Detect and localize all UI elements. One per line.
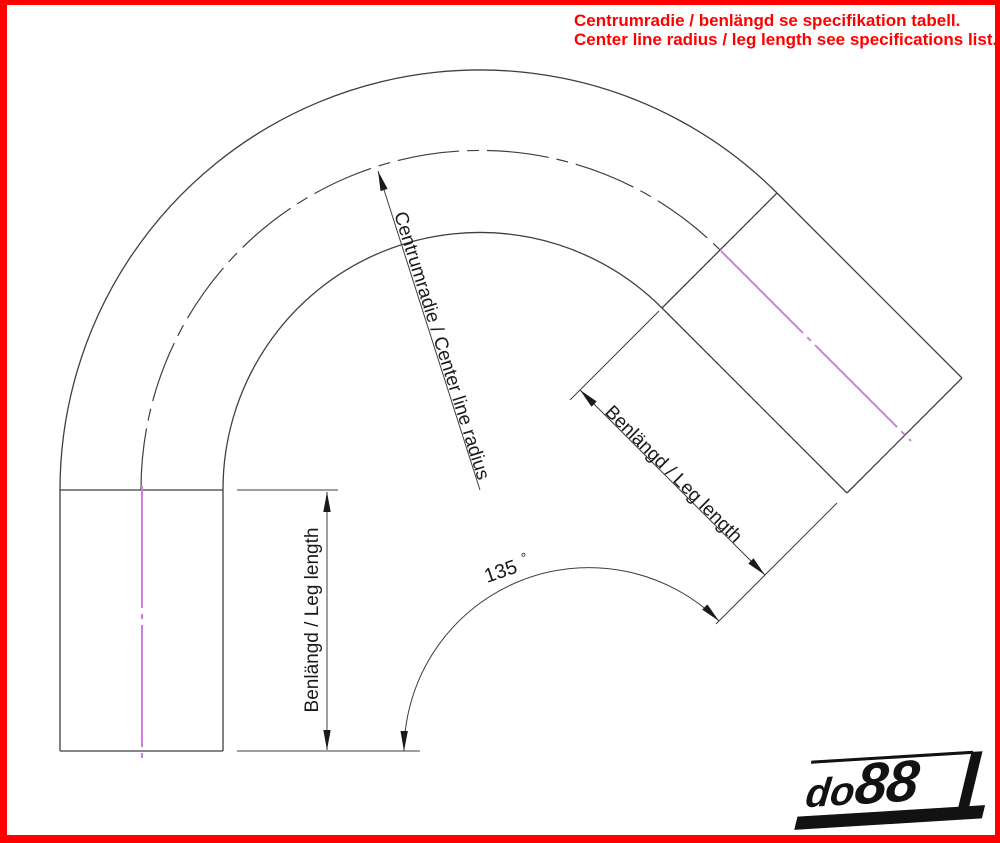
angle-dimension-label: 135 ° [480, 549, 532, 588]
angle-dimension-arc [404, 568, 719, 751]
page: Centrumradie / benlängd se specifikation… [0, 0, 1000, 843]
bend-diagram-svg: Centrumradie / Center line radius Benlän… [0, 0, 1000, 843]
spec-note-line-swedish: Centrumradie / benlängd se specifikation… [574, 11, 997, 30]
logo-text-do: do [804, 771, 857, 814]
logo-text-88: 88 [852, 752, 921, 814]
spec-note: Centrumradie / benlängd se specifikation… [574, 11, 997, 49]
spec-note-line-english: Center line radius / leg length see spec… [574, 30, 997, 49]
logo-right-edge [958, 751, 983, 810]
do88-logo: do88 [795, 747, 983, 832]
logo-text: do88 [803, 752, 921, 817]
left-leg-dimension-label: Benlängd / Leg length [302, 528, 323, 713]
right-leg-centerline [721, 251, 911, 441]
right-leg-dimension-label: Benlängd / Leg length [600, 402, 746, 548]
angle-degree-symbol: ° [519, 549, 530, 566]
radius-dimension-label: Centrumradie / Center line radius [389, 209, 493, 482]
right-leg-ext-upper [570, 311, 659, 400]
